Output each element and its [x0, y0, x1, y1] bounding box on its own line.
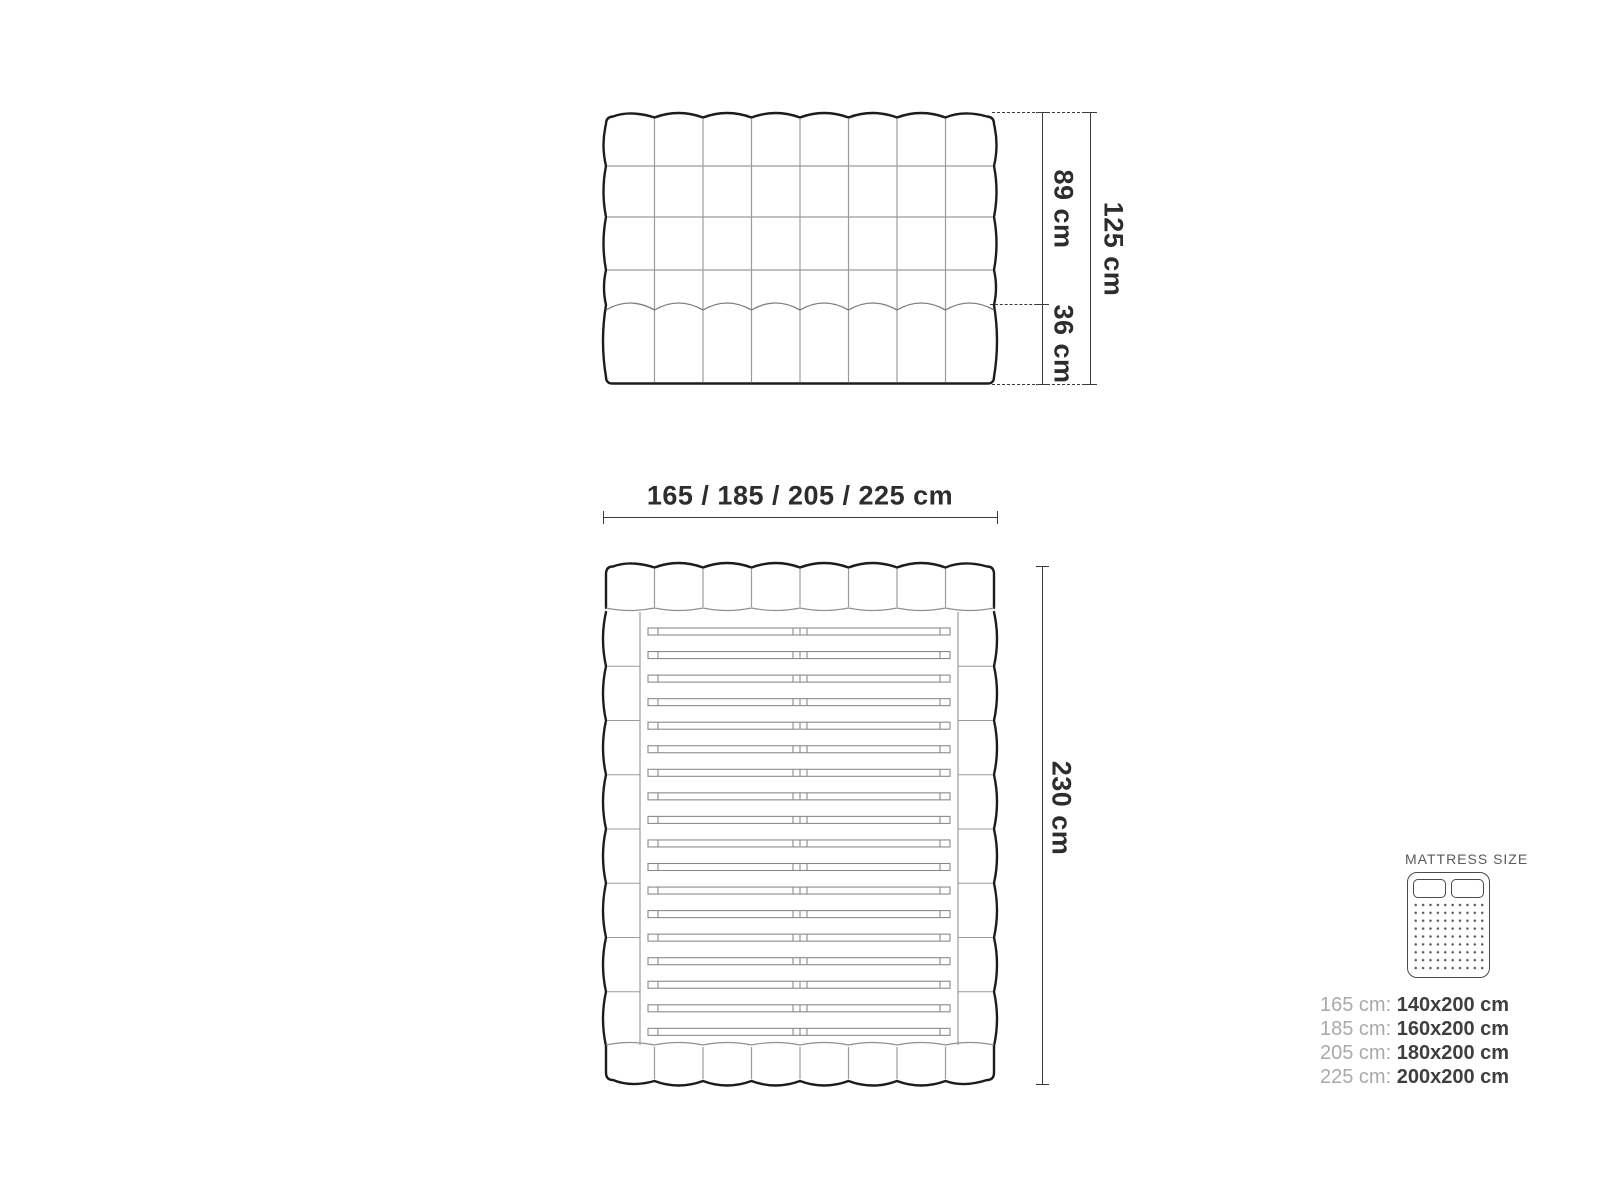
upper-height-dim-label: 89 cm: [1048, 169, 1079, 248]
mattress-size-row: 205 cm: 180x200 cm: [1320, 1042, 1492, 1065]
total-dim-tick-top: [1084, 112, 1097, 113]
pillow-icon: [1451, 879, 1484, 898]
mattress-size-value: 180x200 cm: [1397, 1042, 1509, 1064]
mattress-size-row: 185 cm: 160x200 cm: [1320, 1018, 1492, 1041]
headboard-strip-bottom-edge: [606, 608, 994, 611]
right-rail-outline: [994, 612, 997, 1046]
total-height-dim-label: 125 cm: [1098, 202, 1129, 297]
inner-dim-tick-bottom: [1036, 384, 1049, 385]
width-dim-tick-left: [603, 511, 604, 524]
mattress-size-value: 140x200 cm: [1397, 994, 1509, 1016]
height-dimension-line-total: [1090, 113, 1091, 385]
frame-width-options-label: 165 / 185 / 205 / 225 cm: [647, 481, 953, 512]
mattress-size-row: 225 cm: 200x200 cm: [1320, 1066, 1492, 1089]
mattress-size-row: 165 cm: 140x200 cm: [1320, 994, 1492, 1017]
extension-line-headboard-middle: [990, 304, 1042, 305]
mattress-size-value: 200x200 cm: [1397, 1066, 1509, 1088]
headboard-front-view-drawing: [590, 100, 1010, 400]
product-dimension-diagram: 165 / 185 / 205 / 225 cm 89 cm 36 cm 125…: [0, 0, 1600, 1200]
frame-size-label: 165 cm:: [1320, 994, 1391, 1016]
frame-length-dim-label: 230 cm: [1046, 761, 1077, 856]
bed-frame-top-view-drawing: [590, 548, 1010, 1108]
mattress-quilting-dots: [1412, 901, 1486, 972]
width-dim-tick-right: [997, 511, 998, 524]
total-dim-tick-bottom: [1084, 384, 1097, 385]
pillow-icon: [1413, 879, 1446, 898]
legend-title: MATTRESS SIZE: [1405, 851, 1528, 867]
length-dim-tick-bottom: [1036, 1084, 1049, 1085]
footer-strip-top-edge: [606, 1043, 994, 1046]
height-dimension-line-inner: [1042, 113, 1043, 385]
frame-size-label: 185 cm:: [1320, 1018, 1391, 1040]
inner-dim-tick-top: [1036, 112, 1049, 113]
lower-height-dim-label: 36 cm: [1048, 304, 1079, 383]
mattress-size-value: 160x200 cm: [1397, 1018, 1509, 1040]
length-dimension-line: [1042, 567, 1043, 1085]
frame-size-label: 205 cm:: [1320, 1042, 1391, 1064]
frame-size-label: 225 cm:: [1320, 1066, 1391, 1088]
mattress-icon: [1407, 872, 1490, 978]
width-dimension-line: [603, 517, 997, 518]
length-dim-tick-top: [1036, 566, 1049, 567]
left-rail-outline: [603, 612, 606, 1046]
slats-and-rail-segments: [607, 569, 993, 1079]
